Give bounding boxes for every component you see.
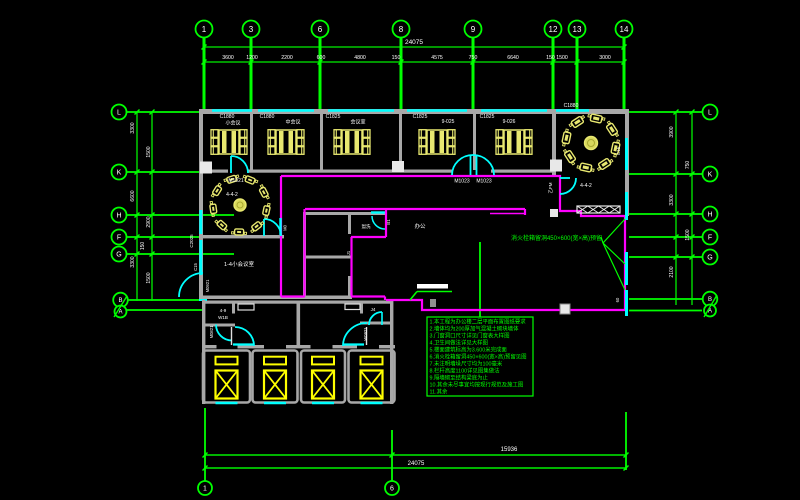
svg-text:12: 12 xyxy=(549,25,558,34)
svg-text:M1021: M1021 xyxy=(228,178,244,184)
svg-text:中会议: 中会议 xyxy=(285,119,300,126)
svg-text:M0: M0 xyxy=(283,224,288,230)
svg-text:C15: C15 xyxy=(193,262,198,270)
svg-text:3300: 3300 xyxy=(130,122,136,133)
svg-text:K: K xyxy=(708,172,713,179)
svg-text:C1880: C1880 xyxy=(260,114,275,120)
svg-text:3300: 3300 xyxy=(669,194,675,205)
svg-text:B: B xyxy=(708,297,712,303)
svg-text:1: 1 xyxy=(202,25,207,34)
svg-text:5.楼面建筑标高为3.600米完成面: 5.楼面建筑标高为3.600米完成面 xyxy=(430,346,508,354)
svg-text:C1825: C1825 xyxy=(326,114,341,120)
svg-text:J1: J1 xyxy=(346,250,351,255)
svg-text:14: 14 xyxy=(620,25,629,34)
svg-text:W0921: W0921 xyxy=(363,327,368,341)
svg-text:3000: 3000 xyxy=(599,55,611,61)
svg-text:60: 60 xyxy=(615,297,620,302)
svg-text:F: F xyxy=(117,235,121,242)
svg-text:750: 750 xyxy=(685,161,691,170)
svg-text:1500: 1500 xyxy=(146,146,152,157)
svg-text:L: L xyxy=(117,110,121,117)
svg-text:13: 13 xyxy=(573,25,582,34)
svg-text:9-026: 9-026 xyxy=(503,119,516,125)
svg-text:1: 1 xyxy=(203,486,207,493)
svg-text:C15: C15 xyxy=(616,146,621,155)
svg-text:G: G xyxy=(707,255,712,262)
svg-text:盥洗: 盥洗 xyxy=(362,223,371,230)
svg-text:会议室: 会议室 xyxy=(350,119,365,126)
svg-text:2100: 2100 xyxy=(669,266,675,277)
svg-text:H: H xyxy=(707,212,712,219)
svg-text:11.其余: 11.其余 xyxy=(430,388,448,396)
svg-text:9.隔墙砌至结构梁底为止: 9.隔墙砌至结构梁底为止 xyxy=(430,374,489,382)
svg-text:M1023: M1023 xyxy=(476,179,492,185)
svg-text:8.栏杆高度1100详见图集做法: 8.栏杆高度1100详见图集做法 xyxy=(430,367,501,375)
svg-text:C1825: C1825 xyxy=(480,114,495,120)
svg-text:2.墙体均为200厚加气混凝土砌块墙体: 2.墙体均为200厚加气混凝土砌块墙体 xyxy=(430,325,520,333)
svg-text:150 1500: 150 1500 xyxy=(546,55,568,61)
svg-text:C2025: C2025 xyxy=(189,234,194,248)
svg-text:J4: J4 xyxy=(371,307,376,312)
svg-text:F: F xyxy=(708,235,712,242)
svg-text:6640: 6640 xyxy=(507,55,519,61)
svg-text:G: G xyxy=(116,252,121,259)
svg-text:L: L xyxy=(708,110,712,117)
svg-text:150: 150 xyxy=(392,55,401,61)
svg-text:C1825: C1825 xyxy=(413,114,428,120)
svg-text:6: 6 xyxy=(390,486,394,493)
svg-text:4.卫生间做法详见大样图: 4.卫生间做法详见大样图 xyxy=(430,339,488,347)
svg-text:3900: 3900 xyxy=(669,126,675,137)
svg-text:1-4小会议室: 1-4小会议室 xyxy=(224,260,254,268)
svg-text:7.未注明墙垛尺寸均为100毫米: 7.未注明墙垛尺寸均为100毫米 xyxy=(430,360,503,368)
svg-text:10.其余未尽事宜均按现行规范及施工图: 10.其余未尽事宜均按现行规范及施工图 xyxy=(430,381,524,389)
svg-text:9-025: 9-025 xyxy=(442,119,455,125)
svg-text:1.本工程为办公楼二层平面布置图纸要求: 1.本工程为办公楼二层平面布置图纸要求 xyxy=(430,318,527,326)
svg-text:15936: 15936 xyxy=(501,447,518,453)
svg-text:4-9: 4-9 xyxy=(220,308,227,313)
svg-text:4-4-2: 4-4-2 xyxy=(580,183,592,189)
svg-text:3600: 3600 xyxy=(222,55,234,61)
svg-text:3: 3 xyxy=(249,25,254,34)
svg-text:750: 750 xyxy=(469,55,478,61)
svg-text:24075: 24075 xyxy=(405,39,423,46)
svg-text:150: 150 xyxy=(140,242,146,251)
svg-text:小会议: 小会议 xyxy=(225,120,240,127)
svg-text:W1B: W1B xyxy=(218,315,228,320)
svg-text:C1880: C1880 xyxy=(220,114,235,120)
svg-text:办公: 办公 xyxy=(414,222,426,230)
svg-text:A: A xyxy=(118,310,122,316)
svg-text:M0821: M0821 xyxy=(209,325,214,338)
svg-text:K: K xyxy=(117,170,122,177)
svg-text:3.门窗洞口尺寸详见门窗表大样图: 3.门窗洞口尺寸详见门窗表大样图 xyxy=(430,332,510,340)
svg-text:9: 9 xyxy=(471,25,476,34)
svg-text:2200: 2200 xyxy=(281,55,293,61)
svg-text:6600: 6600 xyxy=(130,190,136,201)
svg-text:M0921: M0921 xyxy=(205,279,210,292)
svg-text:6.消火栓箱留洞450×600(宽×高)预留见图: 6.消火栓箱留洞450×600(宽×高)预留见图 xyxy=(430,353,527,361)
svg-text:3300: 3300 xyxy=(130,256,136,267)
svg-text:C1880: C1880 xyxy=(564,103,579,109)
svg-text:乙FM: 乙FM xyxy=(547,182,553,193)
svg-text:B1: B1 xyxy=(386,219,391,225)
svg-text:M1023: M1023 xyxy=(454,179,470,185)
svg-text:H: H xyxy=(116,213,121,220)
svg-text:消火栓箱留洞450×600(宽×高)预留: 消火栓箱留洞450×600(宽×高)预留 xyxy=(511,234,602,242)
svg-text:24075: 24075 xyxy=(408,461,425,467)
svg-text:8: 8 xyxy=(399,25,404,34)
svg-text:4800: 4800 xyxy=(354,55,366,61)
svg-text:4575: 4575 xyxy=(431,55,443,61)
svg-text:4-4-2: 4-4-2 xyxy=(226,192,238,198)
svg-text:6: 6 xyxy=(318,25,323,34)
svg-text:2900: 2900 xyxy=(146,216,152,227)
svg-text:1500: 1500 xyxy=(146,272,152,283)
